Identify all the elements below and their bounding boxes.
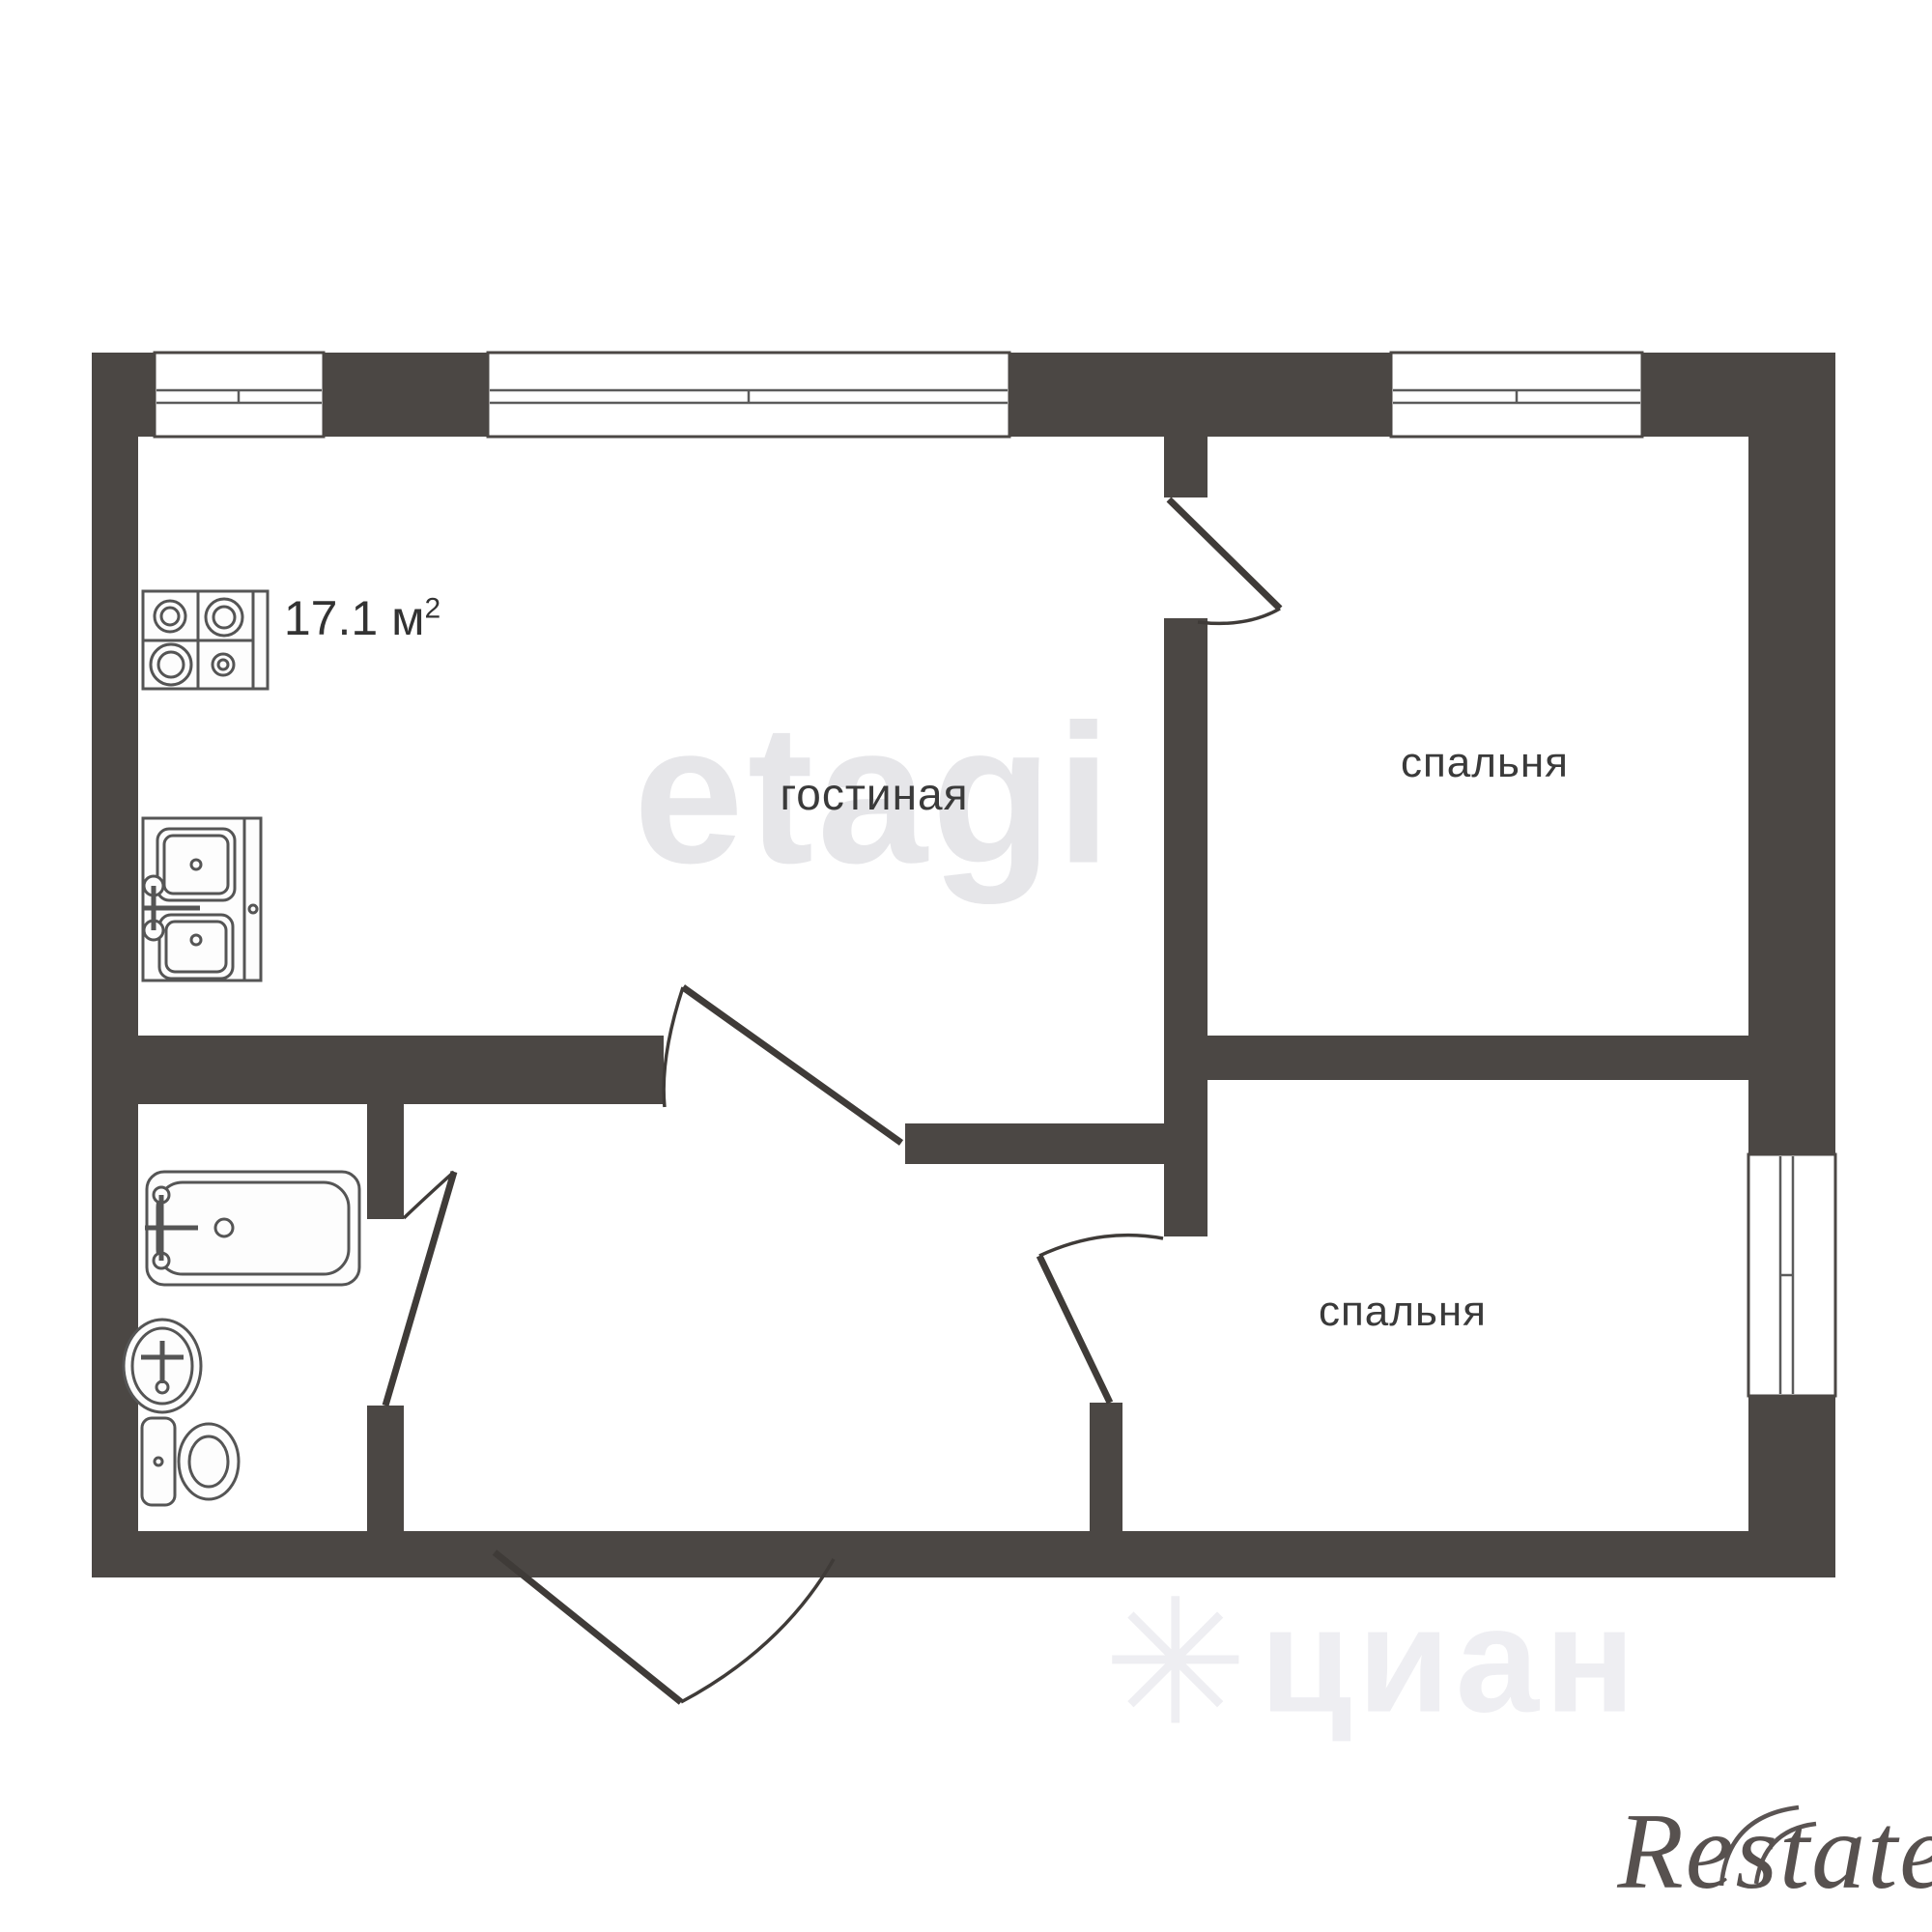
area-value: 17.1 м (284, 591, 425, 645)
window-bedroom-top (1391, 353, 1642, 437)
wall-bathroom-right-upper (367, 1104, 404, 1219)
bathtub-icon (145, 1172, 359, 1285)
area-label: 17.1 м2 (284, 590, 440, 646)
stove-icon (143, 591, 268, 689)
wall-bedroom-bottom-stub (1090, 1403, 1122, 1531)
wall-living-bedroom (1164, 618, 1207, 1236)
floor-plan-drawing (0, 0, 1932, 1932)
washbasin-icon (124, 1320, 201, 1412)
windows (155, 353, 1835, 1396)
wall-kitchen-bathroom (138, 1036, 664, 1104)
wall-living-bedroom-stub (1164, 437, 1207, 497)
floor-plan-page: etagi ✳циан (0, 0, 1932, 1932)
living-room-door (664, 987, 901, 1143)
kitchen-sink-icon (143, 818, 261, 980)
wall-bottom (92, 1531, 1835, 1577)
room-label-bedroom-top: спальня (1401, 739, 1569, 787)
window-kitchen (155, 353, 324, 437)
room-label-bedroom-bottom: спальня (1319, 1288, 1487, 1336)
area-sup: 2 (424, 592, 440, 624)
wall-bathroom-right-lower (367, 1406, 404, 1531)
wall-hallway-top (905, 1123, 1164, 1164)
bedroom-top-door (1169, 499, 1280, 623)
window-living-room (488, 353, 1009, 437)
wall-bedroom-divider (1207, 1036, 1748, 1080)
window-bedroom-bottom (1748, 1154, 1835, 1396)
restate-watermark: Restate (1617, 1790, 1932, 1915)
outer-walls (92, 353, 1835, 1577)
bedroom-bottom-door (1039, 1236, 1163, 1403)
room-label-living: гостиная (780, 768, 968, 820)
toilet-icon (142, 1418, 239, 1505)
